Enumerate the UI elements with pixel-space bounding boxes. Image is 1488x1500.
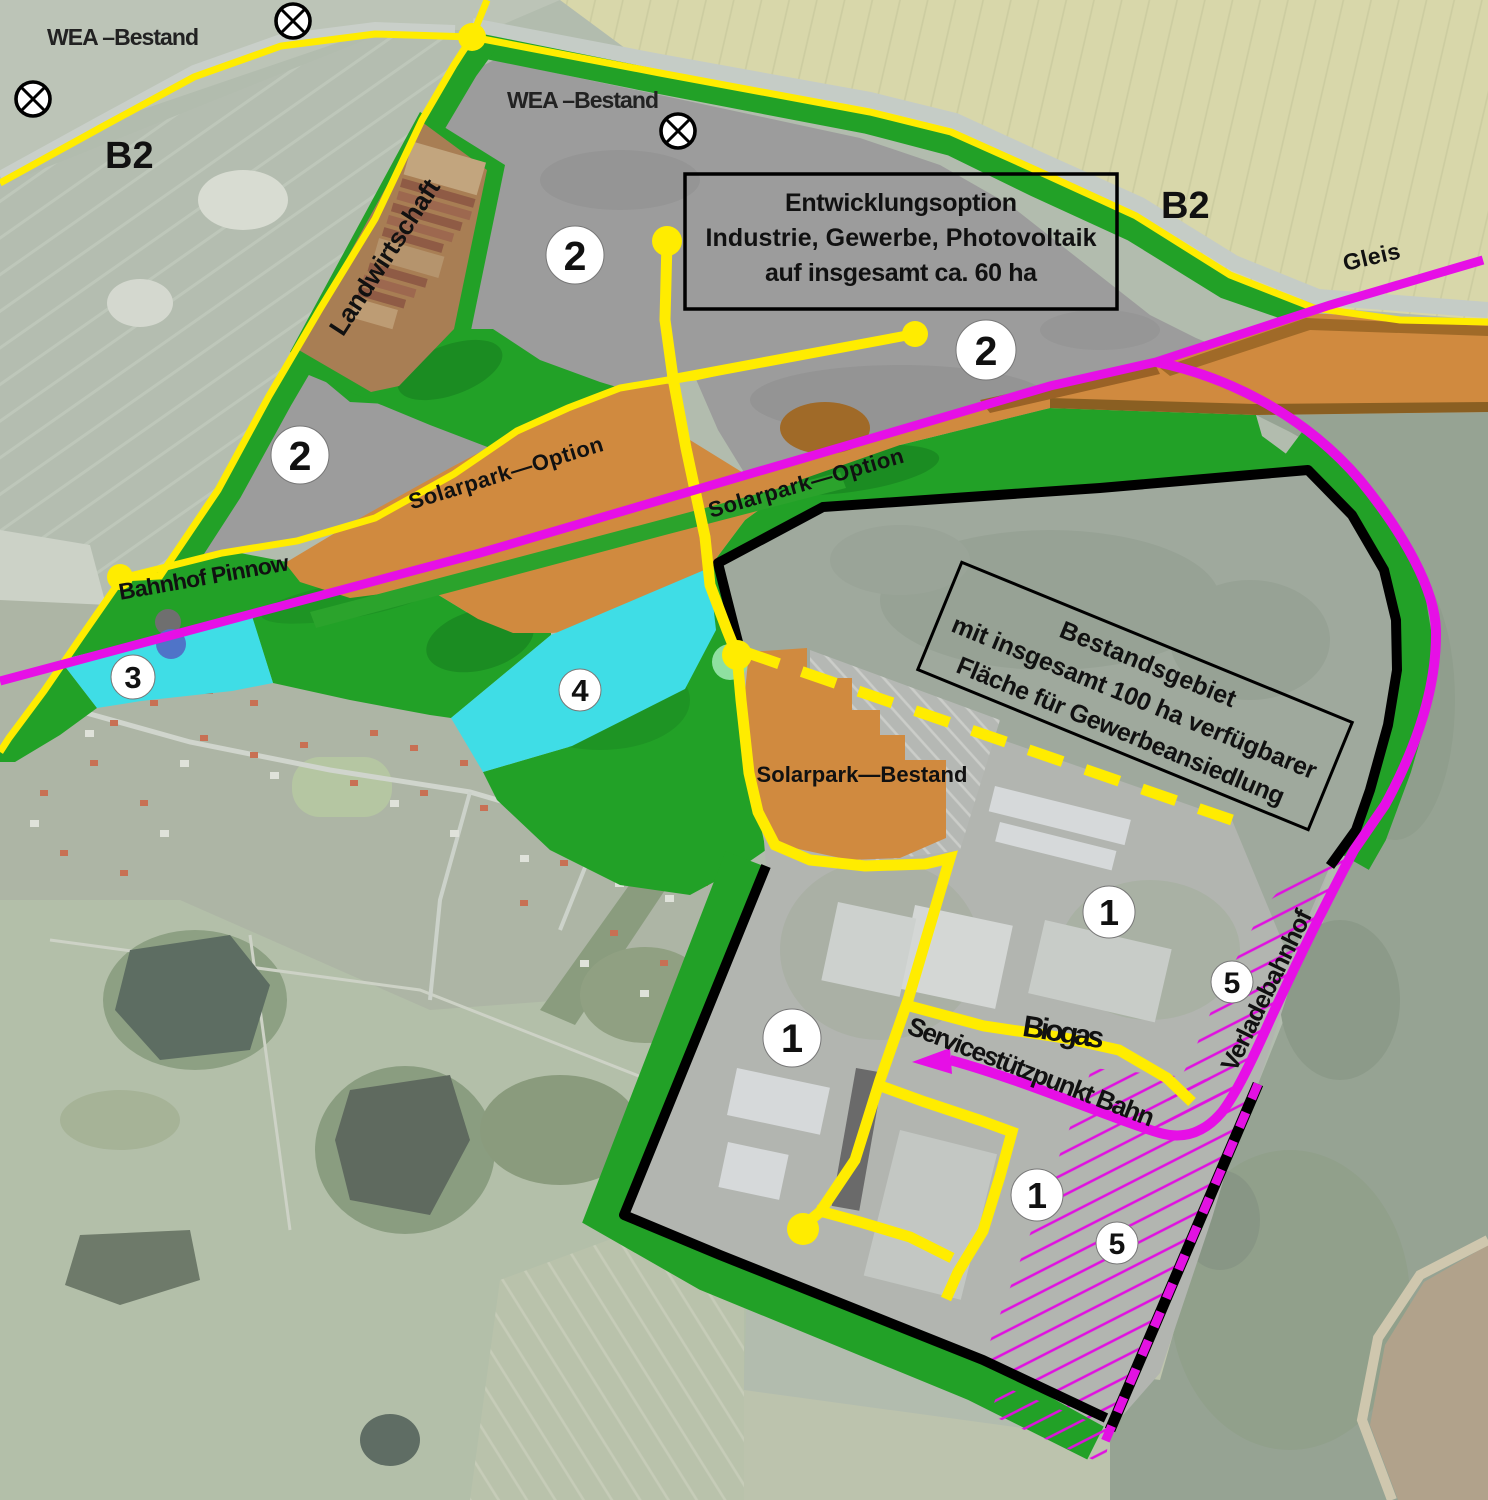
svg-text:B2: B2 bbox=[105, 135, 154, 177]
svg-text:2: 2 bbox=[289, 433, 312, 479]
svg-text:3: 3 bbox=[124, 660, 141, 695]
svg-text:Industrie, Gewerbe, Photovolta: Industrie, Gewerbe, Photovoltaik bbox=[706, 224, 1097, 252]
svg-text:1: 1 bbox=[1099, 892, 1119, 933]
svg-text:WEA –Bestand: WEA –Bestand bbox=[507, 87, 659, 113]
svg-text:auf insgesamt ca. 60 ha: auf insgesamt ca. 60 ha bbox=[765, 259, 1038, 287]
svg-text:Solarpark—Bestand: Solarpark—Bestand bbox=[757, 762, 968, 787]
svg-text:2: 2 bbox=[975, 328, 998, 374]
svg-text:1: 1 bbox=[1027, 1175, 1047, 1216]
svg-text:4: 4 bbox=[571, 673, 589, 708]
svg-text:5: 5 bbox=[1109, 1228, 1126, 1261]
svg-text:1: 1 bbox=[781, 1017, 803, 1061]
svg-text:5: 5 bbox=[1224, 967, 1241, 1000]
svg-text:B2: B2 bbox=[1161, 185, 1210, 227]
svg-text:WEA –Bestand: WEA –Bestand bbox=[47, 24, 199, 50]
svg-text:2: 2 bbox=[564, 233, 587, 279]
svg-text:Entwicklungsoption: Entwicklungsoption bbox=[785, 189, 1017, 217]
